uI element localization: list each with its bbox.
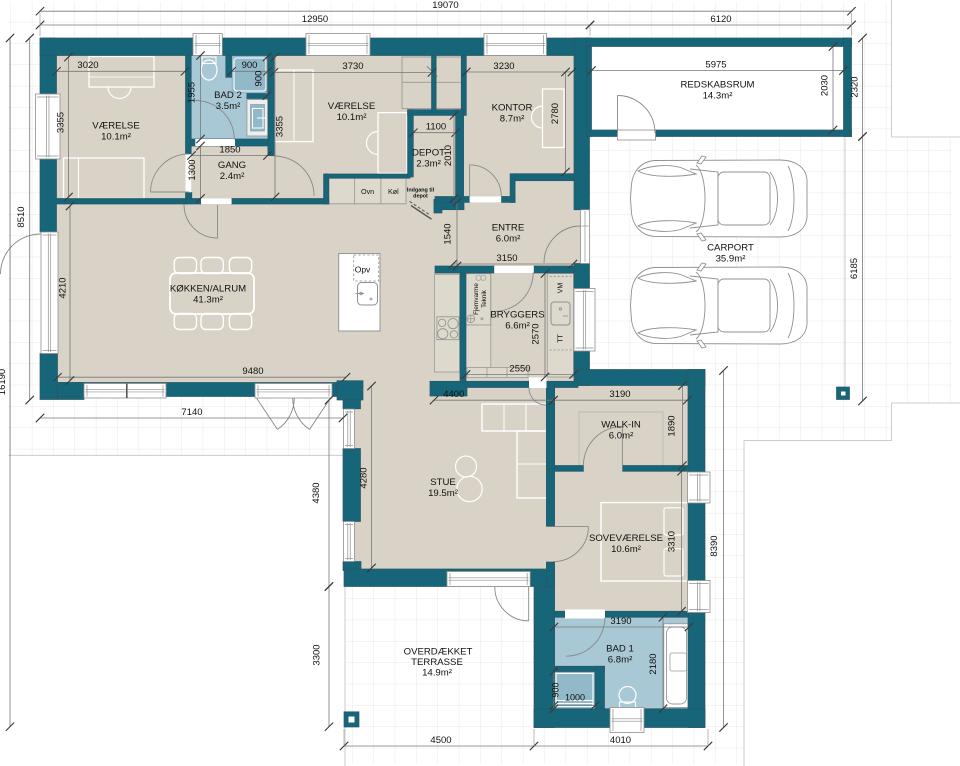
svg-text:3190: 3190 [610, 616, 631, 627]
svg-text:14.3m²: 14.3m² [703, 90, 734, 101]
svg-text:2030: 2030 [819, 75, 830, 96]
svg-text:1890: 1890 [667, 415, 678, 436]
svg-text:2780: 2780 [550, 103, 561, 124]
svg-text:VM: VM [558, 283, 565, 294]
svg-text:1850: 1850 [219, 144, 240, 155]
svg-text:19070: 19070 [432, 0, 458, 11]
svg-text:3230: 3230 [493, 61, 514, 72]
svg-text:3.5m²: 3.5m² [216, 101, 241, 112]
svg-text:19.5m²: 19.5m² [428, 488, 459, 499]
svg-text:Opv: Opv [355, 265, 371, 275]
svg-text:6.0m²: 6.0m² [496, 233, 521, 244]
svg-text:4500: 4500 [430, 735, 451, 746]
svg-text:ENTRE: ENTRE [492, 223, 525, 234]
svg-text:10.6m²: 10.6m² [611, 544, 642, 555]
svg-text:Fjernvarme: Fjernvarme [473, 283, 480, 315]
svg-text:4010: 4010 [610, 735, 631, 746]
svg-text:6120: 6120 [710, 14, 731, 25]
svg-text:DEPOT: DEPOT [412, 148, 445, 159]
svg-text:1540: 1540 [443, 223, 454, 244]
svg-text:900: 900 [254, 71, 265, 87]
svg-text:4280: 4280 [359, 467, 370, 488]
svg-text:900: 900 [242, 60, 258, 71]
svg-text:2.3m²: 2.3m² [416, 158, 441, 169]
svg-text:3300: 3300 [312, 644, 323, 665]
svg-text:REDSKABSRUM: REDSKABSRUM [680, 80, 754, 91]
svg-text:2320: 2320 [849, 76, 860, 97]
svg-text:14.9m²: 14.9m² [422, 667, 453, 678]
svg-text:8510: 8510 [16, 206, 27, 227]
svg-text:BAD 2: BAD 2 [214, 90, 242, 101]
svg-text:1100: 1100 [426, 122, 446, 133]
svg-text:KØKKEN/ALRUM: KØKKEN/ALRUM [170, 284, 246, 295]
svg-text:SOVEVÆRELSE: SOVEVÆRELSE [589, 533, 663, 544]
svg-text:4400: 4400 [443, 389, 464, 400]
svg-text:KONTOR: KONTOR [492, 103, 533, 114]
svg-text:BRYGGERS: BRYGGERS [490, 310, 544, 321]
svg-text:CARPORT: CARPORT [707, 243, 754, 254]
svg-text:Teknik: Teknik [481, 289, 488, 308]
svg-text:12950: 12950 [302, 14, 328, 25]
svg-text:Ovn: Ovn [361, 187, 374, 196]
svg-text:TERRASSE: TERRASSE [411, 657, 463, 668]
svg-text:VÆRELSE: VÆRELSE [328, 101, 375, 112]
svg-text:3355: 3355 [55, 112, 66, 133]
svg-text:1000: 1000 [565, 693, 585, 703]
svg-text:8390: 8390 [709, 535, 720, 556]
svg-text:5975: 5975 [705, 59, 726, 70]
svg-text:3150: 3150 [496, 253, 517, 264]
svg-text:8.7m²: 8.7m² [500, 113, 525, 124]
svg-text:4380: 4380 [311, 482, 322, 503]
svg-text:3190: 3190 [609, 389, 630, 400]
svg-text:900: 900 [551, 682, 561, 697]
svg-text:7140: 7140 [181, 407, 202, 418]
svg-text:2550: 2550 [509, 363, 530, 374]
svg-text:BAD 1: BAD 1 [606, 644, 634, 655]
svg-text:6.0m²: 6.0m² [609, 430, 634, 441]
svg-text:3310: 3310 [666, 531, 677, 552]
svg-text:6185: 6185 [849, 258, 860, 279]
svg-text:3355: 3355 [275, 116, 286, 137]
svg-text:35.9m²: 35.9m² [716, 253, 747, 264]
svg-text:2180: 2180 [648, 653, 659, 674]
svg-text:3020: 3020 [77, 60, 98, 71]
svg-text:9480: 9480 [242, 366, 263, 377]
svg-text:4210: 4210 [58, 277, 69, 298]
svg-text:10.1m²: 10.1m² [337, 112, 368, 123]
svg-text:3730: 3730 [342, 61, 363, 72]
svg-text:STUE: STUE [430, 477, 456, 488]
svg-text:41.3m²: 41.3m² [193, 294, 224, 305]
svg-text:WALK-IN: WALK-IN [601, 420, 641, 431]
svg-text:10.1m²: 10.1m² [101, 131, 132, 142]
svg-text:1300: 1300 [187, 159, 198, 180]
svg-text:1955: 1955 [187, 82, 198, 103]
svg-text:2570: 2570 [531, 323, 542, 344]
svg-text:depot: depot [413, 194, 428, 200]
svg-text:Køl: Køl [388, 187, 399, 196]
svg-text:GANG: GANG [218, 160, 246, 171]
svg-text:2.4m²: 2.4m² [220, 171, 245, 182]
svg-text:TT: TT [558, 334, 565, 343]
svg-text:16190: 16190 [0, 369, 8, 395]
svg-text:6.8m²: 6.8m² [608, 654, 633, 665]
svg-text:VÆRELSE: VÆRELSE [92, 121, 139, 132]
svg-text:6.6m²: 6.6m² [505, 320, 530, 331]
